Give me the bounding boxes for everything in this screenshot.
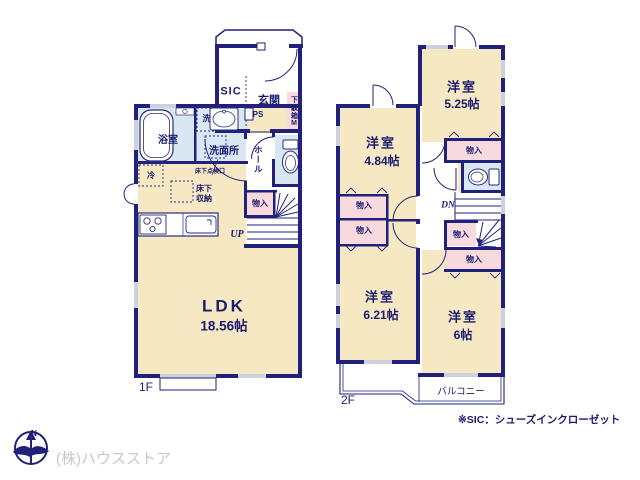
washbasin-icon [210, 108, 238, 130]
terrace-step [160, 378, 216, 390]
room-label-6-21: 洋室 [365, 291, 395, 304]
entrance-door-leaf [257, 43, 265, 50]
hall-label: ホール [254, 146, 263, 175]
floorplan-2f [336, 26, 505, 404]
door-gap-5-25 [453, 45, 479, 49]
floor2-label: 2F [341, 394, 355, 406]
stairs-up-label: UP [230, 230, 243, 240]
entrance-label: 玄関 [258, 96, 280, 107]
closet-label: 物入 [466, 256, 482, 264]
floorplan-page: SIC 玄関 PS 下駄箱M 浴室 洗 洗面所 ホール 物入 UP 冷 床下点検… [0, 0, 640, 480]
compass-north-label: N [31, 430, 37, 438]
sink-icon [186, 216, 216, 233]
bathroom-label: 浴室 [158, 136, 178, 146]
room-size-6: 6帖 [454, 329, 473, 341]
closet-label: 物入 [466, 147, 482, 155]
room-size-ldk: 18.56帖 [200, 319, 247, 333]
underfloor-storage-label-1: 床下 [196, 185, 212, 193]
balcony-label: バルコニー [437, 387, 484, 397]
door-5-25 [455, 26, 476, 47]
closet-label: 物入 [453, 231, 469, 239]
sic-label: SIC [220, 87, 241, 98]
closet-label: 物入 [252, 200, 268, 208]
floor1-label: 1F [139, 381, 153, 393]
floorplan-drawing [0, 0, 640, 480]
laundry-label: 洗 [203, 115, 211, 123]
door-gap-4-84 [370, 104, 396, 108]
kitchen-door-arc [124, 184, 134, 204]
toilet-icon-1f [283, 140, 299, 173]
kitchen-door-gap [134, 184, 138, 204]
fridge-label: 冷 [147, 172, 155, 180]
shoe-box-label: 下駄箱M [291, 96, 298, 128]
kitchen-counter [138, 213, 218, 236]
underfloor-access-label: 床下点検口 [195, 169, 225, 175]
washroom-label: 洗面所 [209, 147, 239, 157]
door-4-84 [373, 85, 393, 106]
room-size-5-25: 5.25帖 [444, 98, 479, 110]
room-label-ldk: LDK [202, 298, 246, 315]
closet-label: 物入 [356, 227, 372, 235]
room-label-5-25: 洋室 [447, 81, 477, 94]
sic-note: ※SIC：シューズインクローゼット [458, 415, 620, 426]
toilet-icon-2f [469, 169, 500, 185]
ps-label: PS [253, 111, 264, 119]
floorplan-1f [124, 30, 303, 390]
stairs-down-label: DN [441, 201, 455, 211]
room-size-4-84: 4.84帖 [364, 155, 399, 167]
closet-label: 物入 [356, 202, 372, 210]
room-label-6: 洋室 [448, 311, 478, 324]
company-name: (株)ハウスストア [56, 452, 171, 467]
room-label-4-84: 洋室 [366, 137, 396, 150]
room-size-6-21: 6.21帖 [363, 309, 398, 321]
underfloor-storage-label-2: 収納 [196, 195, 212, 203]
